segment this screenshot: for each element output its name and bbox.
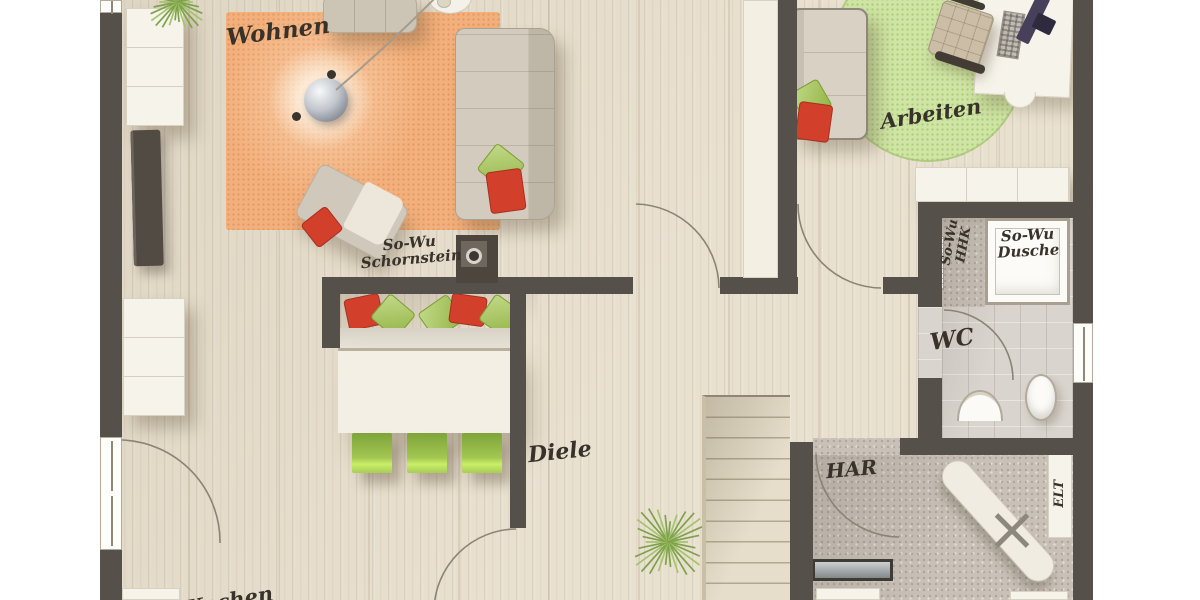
lamp-arm (336, 0, 441, 90)
label-dusche: So-Wu Dusche (992, 226, 1064, 261)
floor-plan: Wohnen Arbeiten Diele WC HAR Kochen So-W… (0, 0, 1200, 600)
overlay-svg (0, 0, 1200, 600)
plant-stairs (635, 509, 702, 575)
room-label-har: HAR (825, 457, 878, 482)
door-arc-corridor (798, 204, 881, 288)
door-arc-kitchen (434, 529, 516, 600)
label-dusche-line2: Dusche (993, 242, 1064, 261)
plant-top-left (151, 0, 205, 28)
door-arc-terrace (122, 440, 220, 543)
door-arc-wohnen (636, 204, 719, 288)
room-label-wc: WC (929, 325, 976, 355)
label-elt: ELT (1053, 474, 1067, 514)
